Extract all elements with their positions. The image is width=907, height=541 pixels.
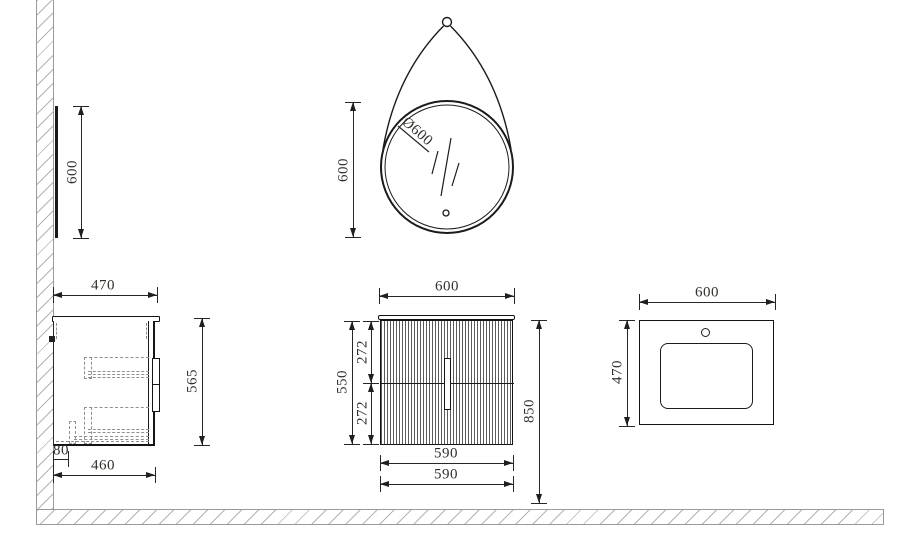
cabinet-front-inner-width-2-dim-arrow xyxy=(504,481,513,487)
basin-top-depth-dim-tick xyxy=(619,426,635,427)
mirror-side-view xyxy=(55,106,58,238)
cabinet-front-inner-width-1-dim-arrow xyxy=(380,460,389,466)
mirror-side-height-dim-arrow xyxy=(78,229,84,238)
hidden-line xyxy=(88,374,149,375)
hidden-line xyxy=(88,432,149,433)
hidden-line xyxy=(88,377,149,378)
hidden-line xyxy=(74,436,149,437)
cabinet-front-drawer-lower-dim-arrow xyxy=(368,435,374,444)
basin-top-width-dim-line xyxy=(639,302,775,303)
basin-top-depth-dim-arrow xyxy=(624,417,630,426)
cabinet-front-total-height-dim-label: 850 xyxy=(522,399,539,423)
cabinet-front-drawer-lower-dim-arrow xyxy=(368,383,374,392)
touch-sensor-icon xyxy=(443,210,449,216)
basin-bowl-outline xyxy=(660,343,753,409)
cabinet-side-depth-bottom-dim-label: 460 xyxy=(91,458,115,475)
cabinet-side-depth-bottom-dim-arrow xyxy=(146,472,155,478)
cabinet-side-wall-gap-dim-label: 80 xyxy=(53,443,69,460)
hidden-line xyxy=(84,407,149,408)
hidden-line xyxy=(56,441,149,442)
hidden-line xyxy=(74,439,149,440)
cabinet-front-width-dim-tick xyxy=(514,288,515,304)
mirror-side-height-dim-tick xyxy=(73,238,89,239)
cabinet-side-depth-top-dim-tick xyxy=(157,287,158,303)
cabinet-front-inner-width-1-dim-arrow xyxy=(504,460,513,466)
wall-bracket xyxy=(49,336,55,342)
cabinet-side-front-panel-line xyxy=(148,321,149,444)
cabinet-side-height-dim-arrow xyxy=(199,318,205,327)
cabinet-front-total-height-dim-arrow xyxy=(536,494,542,503)
cabinet-front-inner-width-2-dim-tick xyxy=(513,476,514,492)
hidden-line xyxy=(56,323,57,339)
hidden-drawer-slide xyxy=(84,357,92,379)
cabinet-side-height-dim-arrow xyxy=(199,436,205,445)
cabinet-side-depth-bottom-dim-tick xyxy=(155,467,156,483)
cabinet-front-width-dim-arrow xyxy=(379,293,388,299)
cabinet-front-drawer-upper-dim-arrow xyxy=(368,374,374,383)
cabinet-front-width-dim-line xyxy=(379,296,514,297)
mirror-side-height-dim-label: 600 xyxy=(65,160,82,184)
hidden-line xyxy=(146,323,147,339)
hidden-line xyxy=(88,429,149,430)
basin-top-width-dim-tick xyxy=(775,294,776,310)
cabinet-front-body-height-dim-arrow xyxy=(349,435,355,444)
mirror-front-height-dim-tick xyxy=(345,237,361,238)
cabinet-front-width-dim-arrow xyxy=(505,293,514,299)
mirror-front-height-dim-arrow xyxy=(350,102,356,111)
cabinet-front-inner-width-2-dim-label: 590 xyxy=(434,467,458,484)
cabinet-front-drawer-lower-dim-label: 272 xyxy=(355,401,372,425)
hook-nail-icon xyxy=(443,18,452,27)
cabinet-front-handle xyxy=(444,358,451,410)
mirror-front-height-dim-line xyxy=(353,102,354,237)
cabinet-front-body-height-dim-arrow xyxy=(349,321,355,330)
cabinet-front-body-height-dim-line xyxy=(352,321,353,444)
cabinet-side-handle-mid-line xyxy=(153,384,159,385)
cabinet-front-total-height-dim-arrow xyxy=(536,320,542,329)
cabinet-front-inner-width-1-dim-line xyxy=(380,463,513,464)
cabinet-front-drawer-lower-dim-tick xyxy=(363,444,379,445)
hidden-line xyxy=(88,371,149,372)
mirror-front-height-dim-label: 600 xyxy=(336,158,353,182)
floor-section-hatch xyxy=(36,509,884,525)
cabinet-front-total-height-dim-line xyxy=(539,320,540,503)
cabinet-side-depth-top-dim-line xyxy=(53,295,157,296)
mirror-front-view xyxy=(370,8,532,248)
cabinet-side-handle xyxy=(152,358,160,412)
hidden-line xyxy=(84,357,149,358)
cabinet-front-inner-width-1-dim-tick xyxy=(513,455,514,471)
cabinet-front-total-height-dim-tick xyxy=(531,503,547,504)
cabinet-side-height-dim-label: 565 xyxy=(185,369,202,393)
cabinet-side-depth-top-dim-arrow xyxy=(148,292,157,298)
basin-top-width-dim-arrow xyxy=(639,299,648,305)
cabinet-front-inner-width-2-dim-line xyxy=(380,484,513,485)
cabinet-front-drawer-upper-dim-label: 272 xyxy=(355,340,372,364)
basin-top-width-dim-arrow xyxy=(766,299,775,305)
cabinet-side-height-dim-tick xyxy=(194,445,210,446)
cabinet-front-width-dim-label: 600 xyxy=(435,279,459,296)
basin-top-depth-dim-line xyxy=(627,320,628,426)
cabinet-front-inner-width-2-dim-arrow xyxy=(380,481,389,487)
cabinet-front-inner-width-1-dim-label: 590 xyxy=(434,446,458,463)
cabinet-front-drawer-upper-dim-arrow xyxy=(368,321,374,330)
cabinet-side-depth-bottom-dim-line xyxy=(53,475,155,476)
cabinet-front-body-height-dim-tick xyxy=(344,444,360,445)
cabinet-front-body-height-dim-label: 550 xyxy=(335,370,352,394)
mirror-side-height-dim-arrow xyxy=(78,106,84,115)
technical-drawing-canvas: Ø600 60060047056580460600272550272850590… xyxy=(0,0,907,541)
basin-top-depth-dim-arrow xyxy=(624,320,630,329)
basin-top-width-dim-label: 600 xyxy=(695,285,719,302)
mirror-front-height-dim-arrow xyxy=(350,228,356,237)
cabinet-side-height-dim-line xyxy=(202,318,203,445)
cabinet-side-depth-top-dim-arrow xyxy=(53,292,62,298)
wall-section-hatch xyxy=(36,0,54,510)
cabinet-side-depth-bottom-dim-arrow xyxy=(53,472,62,478)
faucet-hole-icon xyxy=(701,328,710,337)
cabinet-side-depth-top-dim-label: 470 xyxy=(91,278,115,295)
basin-top-depth-dim-label: 470 xyxy=(610,360,627,384)
